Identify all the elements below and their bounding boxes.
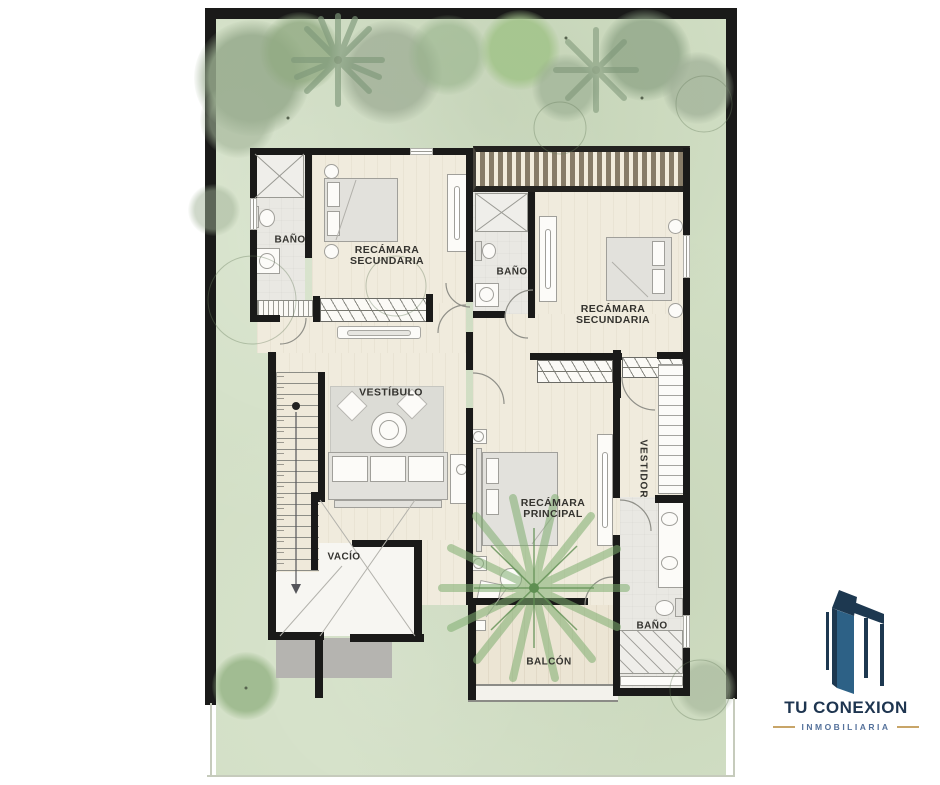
room-label-vacio: VACÍO xyxy=(328,552,361,563)
room-label-bano-3: BAÑO xyxy=(636,621,667,632)
wall xyxy=(315,632,323,698)
sofa-cushion xyxy=(332,456,368,482)
vestidor-shelving xyxy=(658,364,684,494)
wall xyxy=(268,352,276,640)
wall xyxy=(468,605,476,700)
nightstand-lamp-icon xyxy=(668,303,683,318)
tree-icon xyxy=(212,652,280,720)
shower-icon xyxy=(617,630,683,674)
lot-line-bottom xyxy=(207,775,735,777)
logo-building-icon xyxy=(786,580,906,696)
sofa-cushion xyxy=(408,456,444,482)
wall xyxy=(466,332,473,352)
sofa-cushion xyxy=(370,456,406,482)
wall xyxy=(250,148,257,198)
wall xyxy=(305,148,312,258)
wall xyxy=(313,296,320,322)
stair-step-marks xyxy=(277,372,284,572)
pillow-icon xyxy=(486,458,499,484)
toilet-icon xyxy=(475,241,482,261)
nightstand-lamp-icon xyxy=(473,558,484,569)
wall xyxy=(613,535,620,692)
tree-icon xyxy=(408,15,488,95)
tagline-line-left xyxy=(773,726,795,728)
wall xyxy=(250,315,280,322)
window xyxy=(683,235,690,278)
wall xyxy=(613,398,620,498)
wall xyxy=(466,408,473,605)
wall xyxy=(414,540,422,642)
floorplan-image: BAÑO RECÁMARASECUNDARIA BAÑO RECÁMARASEC… xyxy=(0,0,940,785)
wall xyxy=(466,148,473,302)
pillow-icon xyxy=(327,211,340,236)
closet-rod-hatch xyxy=(537,360,613,383)
window xyxy=(410,148,433,155)
console-shelf xyxy=(337,326,421,339)
tagline-line-right xyxy=(897,726,919,728)
wall xyxy=(466,352,473,370)
wall xyxy=(426,294,433,322)
balcon-floor xyxy=(476,605,613,686)
wall xyxy=(352,540,418,547)
toilet-bowl-icon xyxy=(259,209,275,227)
closet-rod-hatch xyxy=(320,298,427,322)
nightstand-lamp-icon xyxy=(324,244,339,259)
roof-slab xyxy=(276,638,392,678)
window xyxy=(683,615,690,648)
sofa-base xyxy=(334,500,442,508)
room-label-recamara-secundaria-2: RECÁMARASECUNDARIA xyxy=(576,304,650,326)
nightstand-lamp-icon xyxy=(668,219,683,234)
balcony-railing xyxy=(468,684,618,702)
room-label-bano-1: BAÑO xyxy=(274,235,305,246)
wall xyxy=(683,278,690,615)
pillow-icon xyxy=(652,269,665,294)
chair-icon xyxy=(500,568,522,590)
pillow-icon xyxy=(327,182,340,207)
wardrobe xyxy=(597,434,613,546)
sink-basin-icon xyxy=(661,556,678,570)
wall xyxy=(350,634,424,642)
boundary-wall-right xyxy=(726,8,737,699)
brand-tagline: INMOBILIARIA xyxy=(801,722,890,732)
wardrobe xyxy=(447,174,467,252)
room-label-recamara-secundaria-1: RECÁMARASECUNDARIA xyxy=(350,245,424,267)
room-label-vestidor: VESTIDOR xyxy=(637,439,650,498)
pergola-louvers xyxy=(473,146,690,192)
wall xyxy=(250,148,410,155)
toilet-bowl-icon xyxy=(655,600,674,616)
room-label-vestibulo: VESTÍBULO xyxy=(359,388,423,399)
pillow-icon xyxy=(652,241,665,266)
toilet-icon xyxy=(675,598,683,617)
wall xyxy=(613,688,690,696)
tree-icon xyxy=(188,184,240,236)
tree-icon xyxy=(662,52,734,124)
wall xyxy=(613,350,621,398)
brand-name: TU CONEXION xyxy=(768,698,924,718)
wall xyxy=(318,372,325,502)
sink-basin-icon xyxy=(259,253,275,269)
wall xyxy=(311,492,318,570)
window-sill xyxy=(620,676,683,686)
wardrobe xyxy=(539,216,557,302)
lot-line-left xyxy=(210,703,212,777)
wall xyxy=(683,148,690,235)
window xyxy=(250,198,257,230)
shower-icon xyxy=(475,193,528,232)
nightstand-lamp-icon xyxy=(324,164,339,179)
room-label-recamara-principal: RECÁMARAPRINCIPAL xyxy=(521,498,585,520)
room-label-bano-2: BAÑO xyxy=(496,267,527,278)
tree-icon xyxy=(532,54,600,122)
wall xyxy=(473,311,505,318)
pillow-icon xyxy=(486,489,499,515)
toilet-bowl-icon xyxy=(482,243,496,259)
room-label-balcon: BALCÓN xyxy=(526,657,571,668)
tree-icon xyxy=(200,82,276,158)
shower-icon xyxy=(255,154,304,198)
wall xyxy=(250,230,257,322)
wall xyxy=(473,598,588,605)
sink-basin-icon xyxy=(479,287,494,302)
wall xyxy=(528,192,535,318)
coffee-table-inner xyxy=(379,420,399,440)
brand-tagline-row: INMOBILIARIA xyxy=(768,722,924,732)
sink-basin-icon xyxy=(661,512,678,526)
nightstand-lamp-icon xyxy=(473,431,484,442)
wall xyxy=(530,353,622,360)
tree-icon xyxy=(260,12,340,92)
lot-line-right xyxy=(733,698,735,777)
brand-logo: TU CONEXION INMOBILIARIA xyxy=(768,580,924,750)
